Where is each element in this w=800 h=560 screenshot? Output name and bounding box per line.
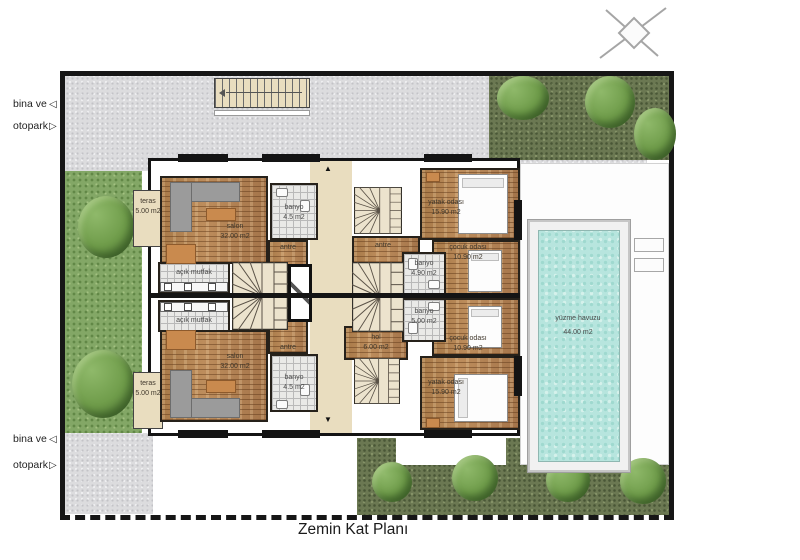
tree-icon [497,76,549,120]
corridor-arrow-icon: ▼ [324,416,332,424]
sun-lounger [634,238,664,252]
pool-label: yüzme havuzu44.00 m2 [545,314,611,338]
entry-arrow-left-icon: ◁ [49,435,57,445]
room-label-mutfak-top: açık mutfak [158,268,230,278]
dining-table [166,244,196,264]
pillow [471,309,499,317]
tree-icon [78,196,134,258]
bush-icon [372,462,412,502]
sink-icon [184,303,192,311]
room-label-hol: hol6.00 m2 [352,333,400,353]
stove-icon [164,283,172,291]
coffee-table [206,380,236,393]
page-title: Zemin Kat Planı [298,521,408,539]
sink-icon [428,280,440,289]
annotation-bina-ve-top: bina ve [13,98,47,110]
entry-arrow-right-icon: ▷ [49,122,57,132]
paving-bottom-left [65,433,153,514]
room-label-antre-right-top: antre [358,241,408,251]
stair-landing [214,110,310,116]
room-label-banyo-right-bottom: banyo5.00 m2 [400,307,448,327]
annotation-bina-ve-bottom: bina ve [13,433,47,445]
room-label-banyo-left-bottom: banyo4.5 m2 [272,373,316,393]
nightstand [426,418,440,428]
room-label-antre-left-bottom: antre [268,343,308,353]
room-label-cocuk-bottom: çocuk odası10.90 m2 [438,334,498,354]
sink-icon [276,188,288,197]
stove-icon [164,303,172,311]
floor-plan: ▲ ▼ teras5.00 m2 salon32.00 m2 banyo4.5 … [0,0,800,560]
sun-lounger [634,258,664,272]
room-label-banyo-left-top: banyo4.5 m2 [272,203,316,223]
dining-table [166,330,196,350]
nightstand [426,172,440,182]
bush-icon [452,455,498,501]
sofa [170,370,192,418]
room-label-teras-bottom: teras5.00 m2 [131,379,165,399]
room-label-yatak-bottom: yatak odası15.90 m2 [416,378,476,398]
room-label-banyo-right-top: banyo4.90 m2 [400,259,448,279]
stair-right-bottom [354,358,400,404]
tree-icon [72,350,134,418]
room-label-salon-bottom: salon32.00 m2 [200,352,270,372]
north-compass-icon [594,2,674,66]
exterior-stair [214,78,310,108]
stair-right-top [354,187,402,234]
room-label-salon-top: salon32.00 m2 [200,222,270,242]
coffee-table [206,208,236,221]
stair-direction-arrow [219,89,225,97]
fridge-icon [208,283,216,291]
entry-arrow-right-icon: ▷ [49,461,57,471]
sofa [170,182,192,232]
room-label-mutfak-bottom: açık mutfak [158,316,230,326]
room-label-yatak-top: yatak odası15.90 m2 [416,198,476,218]
tree-icon [634,108,676,160]
fridge-icon [208,303,216,311]
tree-icon [585,76,635,128]
pool [538,230,620,462]
pillow [462,178,504,188]
annotation-otopark-bottom: otopark [13,459,48,471]
party-wall [148,293,520,298]
sink-icon [276,400,288,409]
room-label-teras-top: teras5.00 m2 [131,197,165,217]
room-label-antre-left-top: antre [268,243,308,253]
entry-arrow-left-icon: ◁ [49,100,57,110]
corridor-arrow-icon: ▲ [324,165,332,173]
sink-icon [184,283,192,291]
annotation-otopark-top: otopark [13,120,48,132]
